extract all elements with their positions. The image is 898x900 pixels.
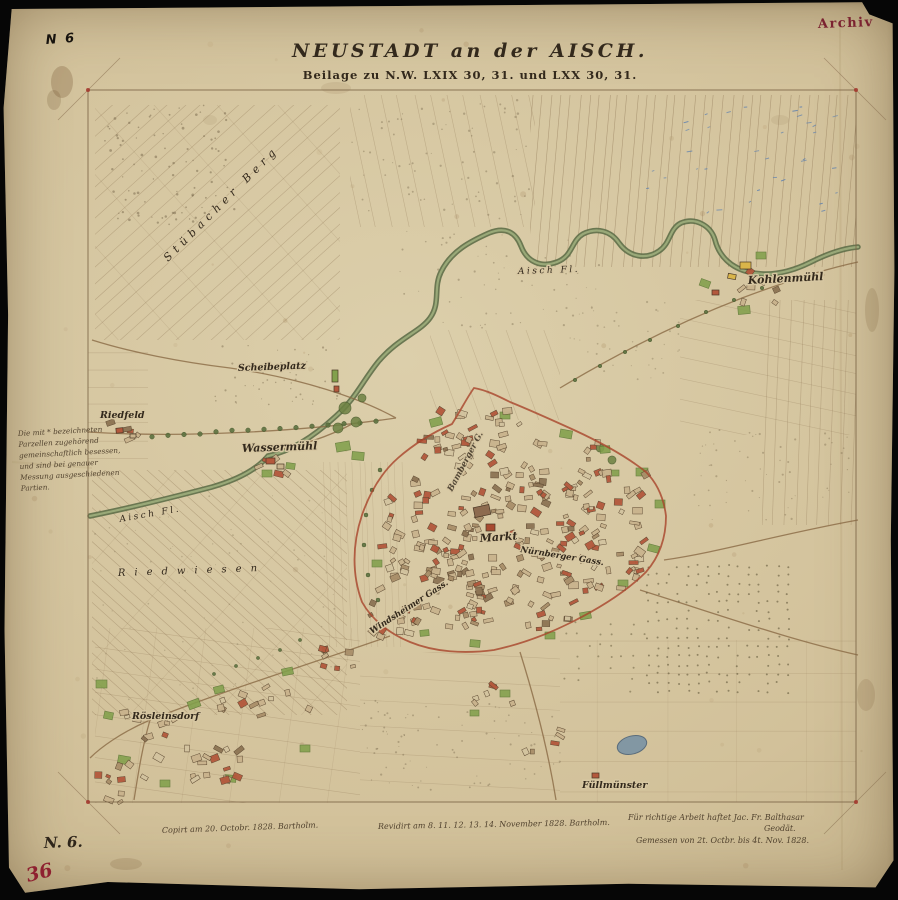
note-liability-line1: Für richtige Arbeit haftet Jac. Fr. Balt… — [627, 813, 805, 822]
coal-mill-building — [740, 262, 751, 269]
town-hall-building — [486, 524, 495, 531]
map-canvas: N 6 Archiv NEUSTADT an der AISCH. Beilag… — [0, 0, 898, 900]
church-building — [473, 504, 491, 517]
watermill-outbuilding — [277, 464, 284, 469]
shooting-range-house — [334, 386, 339, 392]
map-subtitle: Beilage zu N.W. LXIX 30, 31. und LXX 30,… — [303, 68, 637, 82]
label-fuellmuenster: Füllmünster — [581, 780, 648, 791]
archive-stamp: Archiv — [817, 15, 874, 32]
label-aisch-river-top: Aisch Fl. — [517, 265, 580, 277]
label-markt: Markt — [478, 529, 518, 545]
left-margin-note-line: Partien. — [20, 482, 50, 493]
landmark-buildings — [116, 262, 751, 778]
map-sheet: N 6 Archiv NEUSTADT an der AISCH. Beilag… — [0, 0, 898, 900]
note-liability-line2: Geodät. — [764, 824, 796, 833]
fuellmuenster-building — [592, 773, 599, 778]
label-kohlenmuehle: Kohlenmühl — [746, 270, 823, 287]
label-scheibenplatz: Scheibeplatz — [238, 361, 307, 374]
riedfeld-outbuilding — [130, 434, 136, 438]
watermill-building — [266, 458, 275, 464]
riedfeld-building — [116, 428, 123, 434]
coal-mill-red-building — [712, 290, 719, 295]
label-wassermuehle: Wassermühl — [242, 439, 318, 455]
shooting-range-strip — [332, 370, 338, 382]
sheet-number-script: N. 6. — [43, 833, 83, 852]
note-measured: Gemessen von 2t. Octbr. bis 4t. Nov. 182… — [636, 836, 809, 845]
coal-mill-outbuilding — [728, 273, 737, 279]
map-title: NEUSTADT an der AISCH. — [291, 40, 648, 62]
note-revised: Revidirt am 8. 11. 12. 13. 14. November … — [377, 818, 610, 831]
label-riedwiesen: Riedwiesen — [117, 563, 267, 579]
label-roesleinsdorf: Rösleinsdorf — [131, 711, 201, 722]
paper-crease — [840, 22, 842, 870]
scan-background: N 6 Archiv NEUSTADT an der AISCH. Beilag… — [0, 0, 898, 900]
label-stuebacher-berg: Stübacher Berg — [161, 143, 282, 264]
label-riedfeld: Riedfeld — [99, 410, 145, 421]
pond — [615, 732, 649, 757]
sheet-corner-number: N 6 — [45, 31, 76, 48]
note-copied: Copirt am 20. Octobr. 1828. Bartholm. — [162, 821, 319, 835]
inventory-number-red: 36 — [24, 859, 55, 887]
